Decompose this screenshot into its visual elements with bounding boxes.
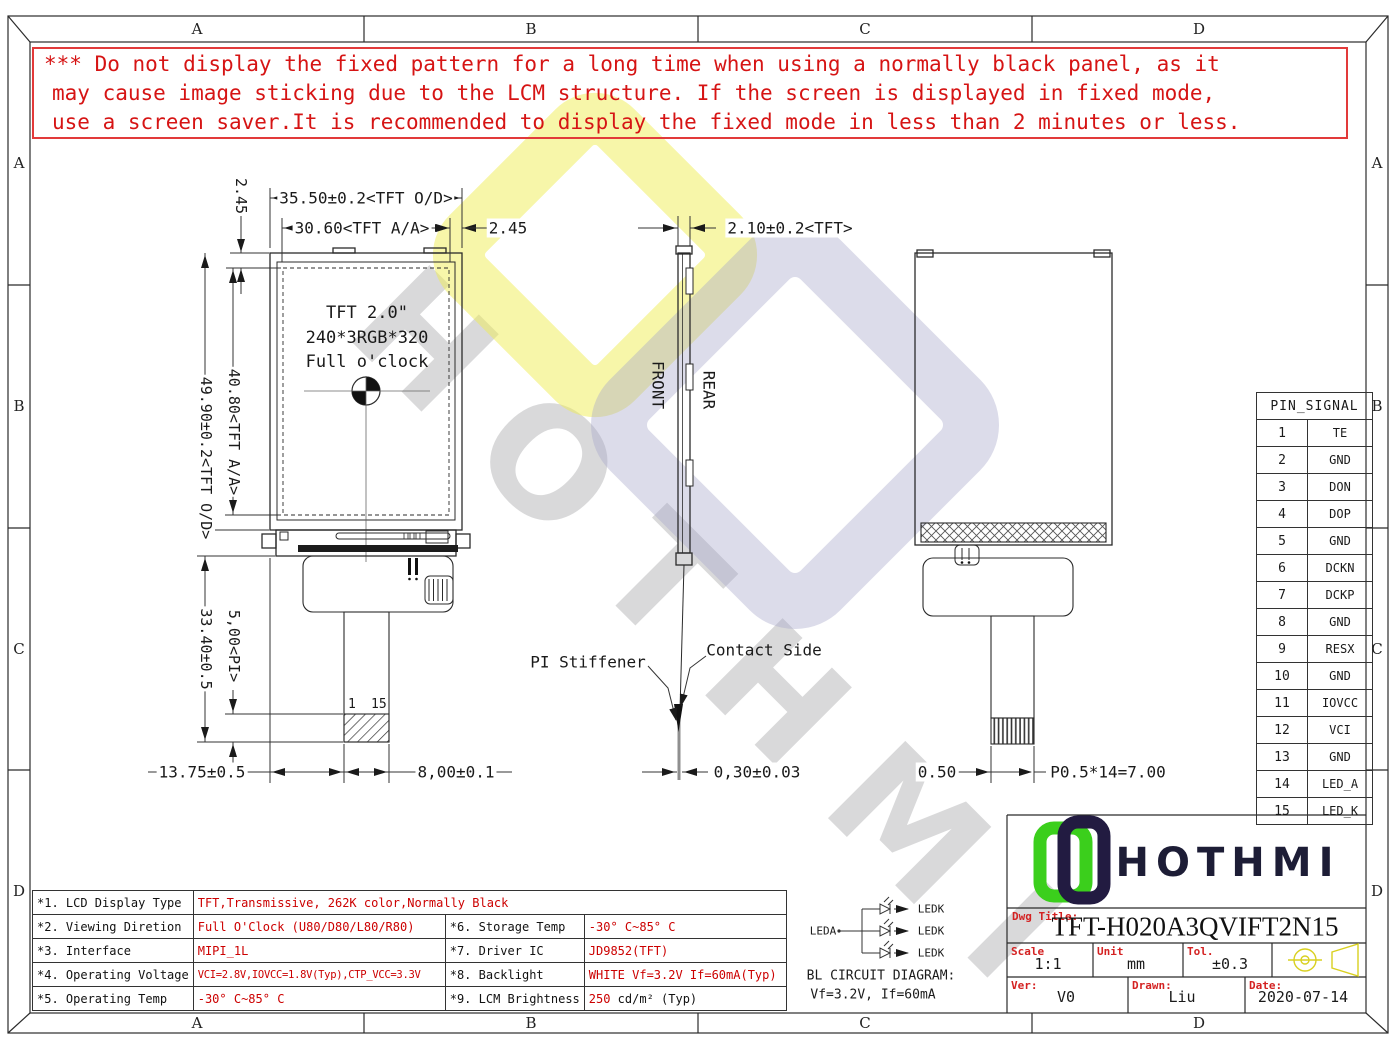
dim-thickness: 2.10±0.2<TFT> xyxy=(725,219,854,238)
warning-line: use a screen saver.It is recommended to … xyxy=(44,108,1336,137)
pin-signal: GND xyxy=(1308,447,1373,474)
zone-letter: B xyxy=(1371,397,1382,415)
zone-letter: A xyxy=(14,154,25,172)
spec-row: *3. InterfaceMIPI_1L*7. Driver ICJD9852(… xyxy=(33,939,787,963)
unit-value: mm xyxy=(1127,955,1145,973)
watermark-logo-mark xyxy=(447,107,986,616)
pin-table-row: 7DCKP xyxy=(1257,582,1373,609)
spec-value: VCI=2.8V,IOVCC=1.8V(Typ),CTP_VCC=3.3V xyxy=(193,963,445,987)
bl-circuit-title: BL CIRCUIT DIAGRAM: xyxy=(807,969,956,984)
side-front-label: FRONT xyxy=(649,361,668,409)
spec-label: *9. LCM Brightness xyxy=(445,987,584,1011)
pin-number: 7 xyxy=(1257,582,1308,609)
dim-margin-right: 2.45 xyxy=(487,219,530,238)
pin-table-row: 3DON xyxy=(1257,474,1373,501)
pin-signal: LED_K xyxy=(1308,798,1373,825)
warning-line: *** Do not display the fixed pattern for… xyxy=(44,50,1336,79)
pin-number: 5 xyxy=(1257,528,1308,555)
pin-table-header: PIN_SIGNAL xyxy=(1257,393,1373,420)
drawn-label: Drawn: xyxy=(1132,979,1172,992)
pin-signal: VCI xyxy=(1308,717,1373,744)
zone-letter: A xyxy=(192,20,203,38)
bl-ledk-label: LEDK xyxy=(918,947,945,960)
pin-signal: GND xyxy=(1308,663,1373,690)
zone-letter: D xyxy=(1193,1014,1205,1032)
pin-signal: IOVCC xyxy=(1308,690,1373,717)
pin-table-row: 9RESX xyxy=(1257,636,1373,663)
zone-letter: B xyxy=(525,20,536,38)
zone-letter: D xyxy=(1193,20,1205,38)
spec-label: *1. LCD Display Type xyxy=(33,891,194,915)
unit-label: Unit xyxy=(1097,945,1124,958)
zone-letter: D xyxy=(1371,882,1383,900)
spec-label: *6. Storage Temp xyxy=(445,915,584,939)
bl-leda-label: LEDA xyxy=(810,925,837,938)
pin-number: 8 xyxy=(1257,609,1308,636)
dim-pitch-margin: 0.50 xyxy=(916,763,959,782)
spec-label: *2. Viewing Diretion xyxy=(33,915,194,939)
ver-label: Ver: xyxy=(1011,979,1038,992)
projection-symbol-icon xyxy=(1288,944,1358,976)
zone-letter: C xyxy=(13,640,24,658)
zone-letter: D xyxy=(13,882,25,900)
dim-pi: 5,00<PI> xyxy=(225,608,243,684)
zone-letter: C xyxy=(859,20,870,38)
hothmi-logo-icon xyxy=(1040,822,1104,898)
zone-letter: C xyxy=(1371,640,1382,658)
pin-number: 11 xyxy=(1257,690,1308,717)
scale-value: 1:1 xyxy=(1034,955,1061,973)
pin-number: 13 xyxy=(1257,744,1308,771)
spec-label: *5. Operating Temp xyxy=(33,987,194,1011)
pin-table-row: 8GND xyxy=(1257,609,1373,636)
dim-fpc-thickness: 0,30±0.03 xyxy=(712,763,803,782)
bl-circuit-subtitle: Vf=3.2V, If=60mA xyxy=(810,988,935,1003)
pin-signal: TE xyxy=(1308,420,1373,447)
dim-width-od: 35.50±0.2<TFT O/D> xyxy=(277,189,454,208)
pin-signal: DCKP xyxy=(1308,582,1373,609)
spec-row: *1. LCD Display TypeTFT,Transmissive, 26… xyxy=(33,891,787,915)
spec-value: WHITE Vf=3.2V If=60mA(Typ) xyxy=(584,963,786,987)
side-rear-label: REAR xyxy=(700,371,719,410)
pin-table-row: 11IOVCC xyxy=(1257,690,1373,717)
fpc-pin-last-label: 15 xyxy=(371,697,387,712)
zone-letter: B xyxy=(13,397,24,415)
spec-label: *8. Backlight xyxy=(445,963,584,987)
dim-height-od: 49.90±0.2<TFT O/D> xyxy=(197,375,215,542)
dim-width-aa: 30.60<TFT A/A> xyxy=(293,219,432,238)
pin-number: 12 xyxy=(1257,717,1308,744)
pi-stiffener-label: PI Stiffener xyxy=(530,653,646,672)
spec-label: *7. Driver IC xyxy=(445,939,584,963)
warning-banner: *** Do not display the fixed pattern for… xyxy=(32,47,1348,139)
pin-signal-table: PIN_SIGNAL 1TE2GND3DON4DOP5GND6DCKN7DCKP… xyxy=(1256,392,1373,825)
drawing-sheet: HOTHMI xyxy=(0,0,1400,1049)
pin-table-row: 1TE xyxy=(1257,420,1373,447)
spec-value: Full O'Clock (U80/D80/L80/R80) xyxy=(193,915,445,939)
pin-table-row: 6DCKN xyxy=(1257,555,1373,582)
front-view-size-label: TFT 2.0" xyxy=(326,303,408,323)
spec-row: *5. Operating Temp-30° C~85° C*9. LCM Br… xyxy=(33,987,787,1011)
dim-margin-left: 2.45 xyxy=(232,176,250,216)
pin-signal: DOP xyxy=(1308,501,1373,528)
pin-signal: LED_A xyxy=(1308,771,1373,798)
front-view-clock-label: Full o'clock xyxy=(306,352,429,372)
pin-number: 9 xyxy=(1257,636,1308,663)
date-value: 2020-07-14 xyxy=(1258,988,1348,1006)
pin-table-row: 4DOP xyxy=(1257,501,1373,528)
warning-line: may cause image sticking due to the LCM … xyxy=(44,79,1336,108)
spec-label: *4. Operating Voltage xyxy=(33,963,194,987)
pin-table-row: 13GND xyxy=(1257,744,1373,771)
fpc-pin-first-label: 1 xyxy=(348,697,356,712)
pin-signal: GND xyxy=(1308,744,1373,771)
zone-letter: A xyxy=(1372,154,1383,172)
spec-value: -30° C~85° C xyxy=(193,987,445,1011)
tol-label: Tol. xyxy=(1187,945,1214,958)
pin-number: 2 xyxy=(1257,447,1308,474)
rear-view-dimensions xyxy=(958,746,1046,783)
pin-number: 6 xyxy=(1257,555,1308,582)
drawn-value: Liu xyxy=(1168,988,1195,1006)
dim-tail-width: 8,00±0.1 xyxy=(415,763,496,782)
tol-value: ±0.3 xyxy=(1212,955,1248,973)
pin-table-row: 15LED_K xyxy=(1257,798,1373,825)
dim-pitch: P0.5*14=7.00 xyxy=(1048,763,1168,782)
pin-table-row: 2GND xyxy=(1257,447,1373,474)
pin-number: 1 xyxy=(1257,420,1308,447)
dwg-title: TFT-H020A3QVIFT2N15 xyxy=(1051,912,1338,943)
pin-signal: GND xyxy=(1308,528,1373,555)
front-view-resolution-label: 240*3RGB*320 xyxy=(306,328,429,348)
bl-ledk-label: LEDK xyxy=(918,903,945,916)
pin-table-row: 10GND xyxy=(1257,663,1373,690)
pin-signal: DON xyxy=(1308,474,1373,501)
pin-table-row: 5GND xyxy=(1257,528,1373,555)
spec-value: MIPI_1L xyxy=(193,939,445,963)
zone-letter: A xyxy=(192,1014,203,1032)
pin-number: 10 xyxy=(1257,663,1308,690)
pin-number: 15 xyxy=(1257,798,1308,825)
contact-side-label: Contact Side xyxy=(706,641,822,660)
spec-value: TFT,Transmissive, 262K color,Normally Bl… xyxy=(193,891,786,915)
spec-value: 250 cd/m² (Typ) xyxy=(584,987,786,1011)
spec-label: *3. Interface xyxy=(33,939,194,963)
bl-circuit-drawing xyxy=(837,897,908,958)
spec-table: *1. LCD Display TypeTFT,Transmissive, 26… xyxy=(32,890,787,1011)
spec-row: *4. Operating VoltageVCI=2.8V,IOVCC=1.8V… xyxy=(33,963,787,987)
pin-signal: DCKN xyxy=(1308,555,1373,582)
pin-table-row: 12VCI xyxy=(1257,717,1373,744)
dim-fpc-length: 33.40±0.5 xyxy=(197,606,215,691)
brand-wordmark: HOTHMI xyxy=(1116,840,1341,886)
pin-number: 4 xyxy=(1257,501,1308,528)
zone-letter: B xyxy=(525,1014,536,1032)
pin-number: 3 xyxy=(1257,474,1308,501)
bl-ledk-label: LEDK xyxy=(918,925,945,938)
zone-letter: C xyxy=(859,1014,870,1032)
pin-signal: GND xyxy=(1308,609,1373,636)
ver-value: V0 xyxy=(1057,988,1075,1006)
spec-value: -30° C~85° C xyxy=(584,915,786,939)
spec-row: *2. Viewing DiretionFull O'Clock (U80/D8… xyxy=(33,915,787,939)
dim-height-aa: 40.80<TFT A/A> xyxy=(225,367,243,497)
pin-number: 14 xyxy=(1257,771,1308,798)
spec-value: JD9852(TFT) xyxy=(584,939,786,963)
dim-tail-offset: 13.75±0.5 xyxy=(157,763,248,782)
pin-signal: RESX xyxy=(1308,636,1373,663)
pin-table-row: 14LED_A xyxy=(1257,771,1373,798)
